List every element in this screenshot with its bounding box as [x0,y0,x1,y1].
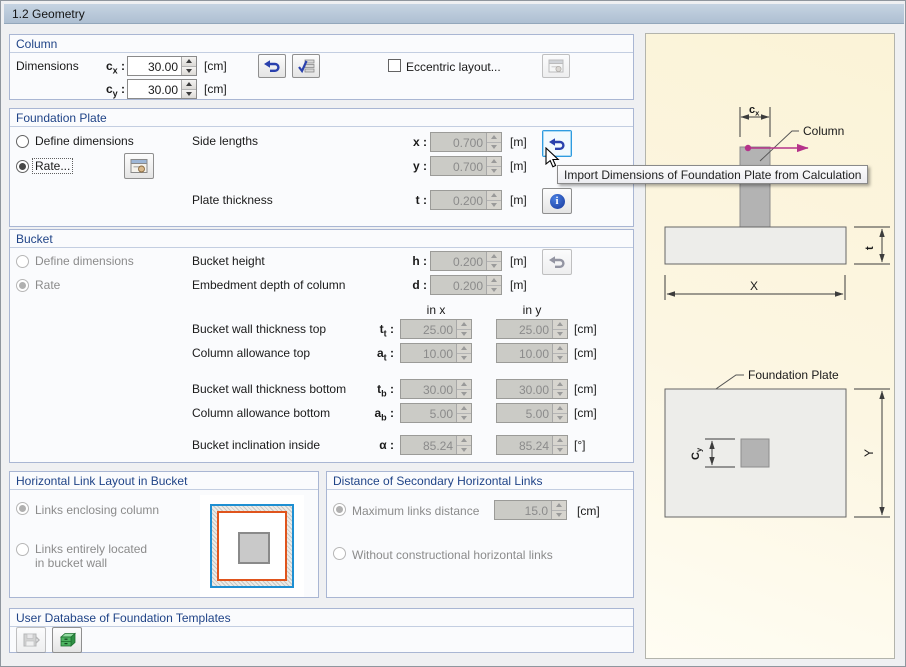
max-links-distance-unit: [cm] [577,504,600,518]
bucket-row-input-y: 5.00 [496,403,568,423]
fp-x-input: 0.700 [430,132,502,152]
bucket-row-label: Column allowance top [192,346,310,360]
save-template-icon [22,632,40,648]
fp-define-dimensions-label[interactable]: Define dimensions [35,134,134,148]
bucket-row-input-y: 10.00 [496,343,568,363]
embedment-depth-label: Embedment depth of column [192,278,345,292]
column-rect-plan [741,439,769,467]
bucket-h-spinner [486,252,501,270]
save-template-button [16,627,46,653]
group-user-database: User Database of Foundation Templates [9,608,634,653]
bucket-row-input-x: 25.00 [400,319,472,339]
bucket-row-input-x: 30.00 [400,379,472,399]
eccentric-layout-edit-button [542,54,570,78]
bucket-row-unit: [cm] [574,406,597,420]
without-horizontal-links-radio [333,547,346,560]
foundation-plate-diagram-label: Foundation Plate [748,368,839,382]
fp-t-unit: [m] [510,193,527,207]
y-dimension-label: Y [862,449,876,457]
spinner [456,404,471,422]
spinner [456,344,471,362]
dialog-title-bar: 1.2 Geometry [4,4,904,24]
bucket-row-label: Column allowance bottom [192,406,330,420]
bucket-row-input-x: 85.24 [400,435,472,455]
bucket-row-symbol: tt : [342,322,394,340]
side-lengths-label: Side lengths [192,134,258,148]
cy-symbol: cy : [50,82,125,100]
group-column: Column Dimensions cx : 30.00 [cm] cy : 3… [9,34,634,100]
t-dimension-label: t [864,246,876,250]
import-column-dimensions-button[interactable] [258,54,286,78]
fp-rate-radio[interactable] [16,160,29,173]
link-square [217,511,287,581]
bucket-row-unit: [cm] [574,322,597,336]
bucket-define-dimensions-radio [16,255,29,268]
bucket-d-unit: [m] [510,278,527,292]
bucket-height-label: Bucket height [192,254,265,268]
cx-dimension-label: cx [749,104,760,118]
fp-t-input: 0.200 [430,190,502,210]
cy-unit: [cm] [204,82,227,96]
cy-spinner[interactable] [181,80,196,98]
group-link-layout: Horizontal Link Layout in Bucket Links e… [9,471,319,598]
in-x-column-header: in x [400,303,472,317]
group-link-layout-header: Horizontal Link Layout in Bucket [10,472,318,490]
spinner [552,404,567,422]
links-in-bucket-wall-radio [16,543,29,556]
max-links-distance-radio [333,503,346,516]
page-title: 1.2 Geometry [12,7,85,21]
fp-t-spinner [486,191,501,209]
info-icon: i [550,194,565,209]
bucket-d-input: 0.200 [430,275,502,295]
bucket-row-label: Bucket inclination inside [192,438,320,452]
cx-symbol: cx : [50,59,125,77]
tooltip: Import Dimensions of Foundation Plate fr… [557,165,868,184]
spinner [552,380,567,398]
fp-define-dimensions-radio[interactable] [16,135,29,148]
import-arrow-icon [548,255,566,269]
fp-y-input: 0.700 [430,156,502,176]
bucket-define-dimensions-label: Define dimensions [35,254,134,268]
cx-unit: [cm] [204,59,227,73]
bucket-row-symbol: at : [342,346,394,364]
bucket-outline-square [210,504,294,588]
links-in-bucket-wall-label-2: in bucket wall [35,556,107,570]
eccentric-layout-label[interactable]: Eccentric layout... [406,60,501,74]
fp-rate-settings-button[interactable] [124,153,154,179]
eccentric-layout-checkbox[interactable] [388,59,401,72]
spinner [552,436,567,454]
links-in-bucket-wall-label-1: Links entirely located [35,542,147,556]
link-layout-illustration [200,495,304,597]
spinner [551,501,566,519]
bucket-rate-radio [16,279,29,292]
bucket-rate-label: Rate [35,278,60,292]
import-arrow-icon [263,59,281,73]
geometry-diagram: cx Column t X Foundation Plate [646,34,894,658]
bucket-row-input-y: 85.24 [496,435,568,455]
bucket-h-symbol: h : [387,254,427,268]
fp-rate-label[interactable]: Rate... [33,159,72,173]
bucket-h-input: 0.200 [430,251,502,271]
column-diagram-label: Column [803,124,844,138]
window-edit-icon [130,158,149,175]
column-rect-side [740,147,770,227]
check-column-dimensions-button[interactable] [292,54,320,78]
mouse-cursor [545,147,561,169]
in-y-column-header: in y [496,303,568,317]
x-dimension-label: X [750,279,758,293]
bucket-row-label: Bucket wall thickness bottom [192,382,346,396]
bucket-row-input-x: 10.00 [400,343,472,363]
import-bucket-button [542,249,572,275]
bucket-row-unit: [cm] [574,346,597,360]
spinner [552,320,567,338]
max-links-distance-label: Maximum links distance [352,504,479,518]
fp-x-symbol: x : [395,135,427,149]
geometry-diagram-panel: cx Column t X Foundation Plate [645,33,895,659]
links-enclosing-column-radio [16,502,29,515]
bucket-row-symbol: tb : [342,382,394,400]
bucket-d-spinner [486,276,501,294]
group-bucket: Bucket Define dimensions Rate Bucket hei… [9,229,634,463]
fp-y-symbol: y : [395,159,427,173]
spinner [456,380,471,398]
check-list-icon [297,58,315,74]
max-links-distance-input: 15.0 [494,500,567,520]
tooltip-text: Import Dimensions of Foundation Plate fr… [564,168,861,182]
fp-y-unit: [m] [510,159,527,173]
spinner [552,344,567,362]
plate-thickness-info-button[interactable]: i [542,188,572,214]
bucket-row-input-x: 5.00 [400,403,472,423]
fp-x-unit: [m] [510,135,527,149]
bucket-row-symbol: ab : [342,406,394,424]
group-secondary-links-header: Distance of Secondary Horizontal Links [327,472,633,490]
cx-spinner[interactable] [181,57,196,75]
database-icon [58,632,77,649]
bucket-h-unit: [m] [510,254,527,268]
spinner [456,436,471,454]
window-edit-icon [548,59,565,74]
group-secondary-links: Distance of Secondary Horizontal Links M… [326,471,634,598]
group-column-header: Column [10,35,633,53]
group-foundation-plate-header: Foundation Plate [10,109,633,127]
bucket-row-symbol: α : [342,438,394,456]
column-square [238,532,270,564]
fp-y-spinner [486,157,501,175]
bucket-row-input-y: 25.00 [496,319,568,339]
plate-thickness-label: Plate thickness [192,193,273,207]
bucket-row-input-y: 30.00 [496,379,568,399]
fp-t-symbol: t : [395,193,427,207]
spinner [456,320,471,338]
fp-x-spinner [486,133,501,151]
group-user-database-header: User Database of Foundation Templates [10,609,633,627]
cy-input[interactable]: 30.00 [127,79,197,99]
group-foundation-plate: Foundation Plate Define dimensions Rate.… [9,108,634,227]
group-bucket-header: Bucket [10,230,633,248]
links-enclosing-column-label: Links enclosing column [35,503,159,517]
without-horizontal-links-label: Without constructional horizontal links [352,548,553,562]
geometry-dialog: 1.2 Geometry Column Dimensions cx : 30.0… [0,0,906,667]
open-template-database-button[interactable] [52,627,82,653]
bucket-row-unit: [°] [574,438,585,452]
bucket-d-symbol: d : [387,278,427,292]
plate-rect-side [665,227,846,264]
bucket-row-label: Bucket wall thickness top [192,322,326,336]
bucket-row-unit: [cm] [574,382,597,396]
cx-input[interactable]: 30.00 [127,56,197,76]
